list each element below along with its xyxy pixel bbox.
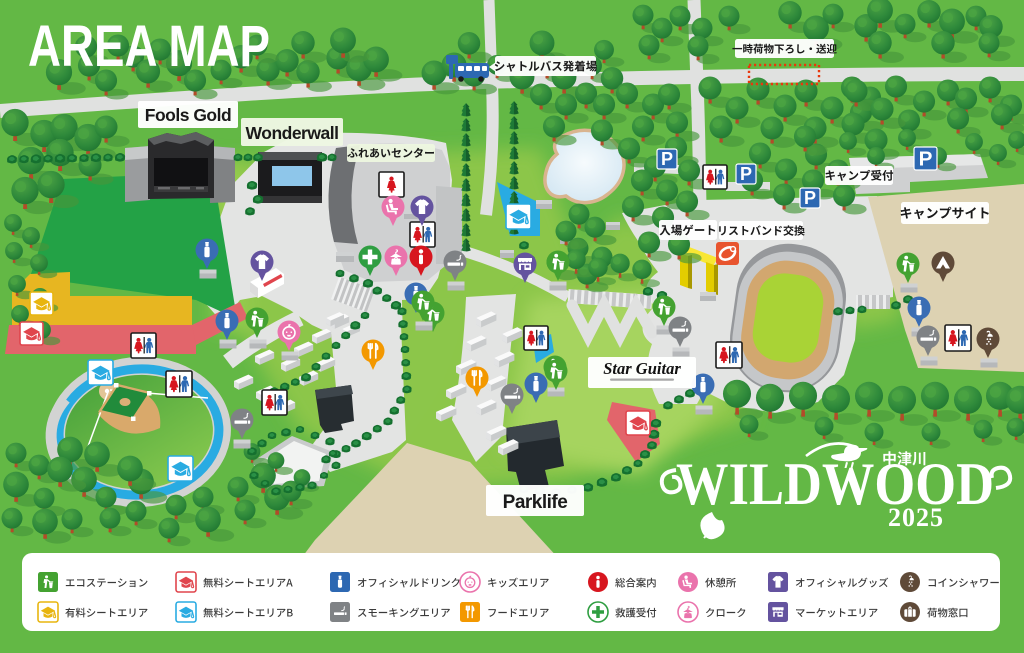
svg-text:WILDWOOD: WILDWOOD	[676, 451, 994, 517]
svg-text:P: P	[919, 147, 933, 170]
svg-text:Wonderwall: Wonderwall	[246, 123, 339, 143]
svg-text:AREA MAP: AREA MAP	[28, 14, 270, 79]
svg-text:P: P	[661, 149, 673, 169]
svg-text:P: P	[804, 188, 816, 208]
svg-text:Star Guitar: Star Guitar	[603, 359, 681, 378]
svg-text:2025: 2025	[888, 503, 944, 532]
svg-text:Fools Gold: Fools Gold	[145, 105, 231, 125]
svg-text:P: P	[740, 164, 752, 184]
svg-text:Parklife: Parklife	[503, 492, 568, 513]
